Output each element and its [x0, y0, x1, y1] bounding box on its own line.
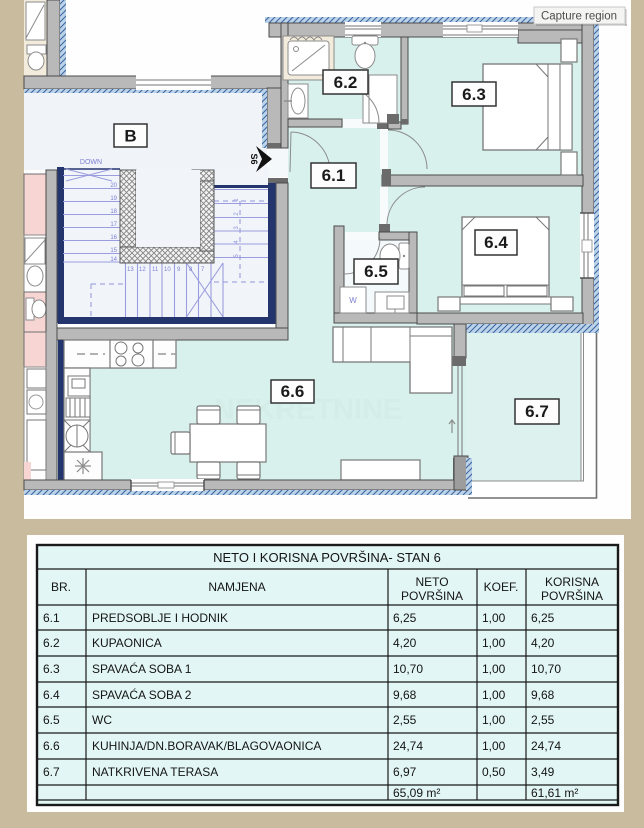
- svg-text:POVRŠINA: POVRŠINA: [401, 588, 463, 603]
- svg-text:11: 11: [152, 267, 159, 273]
- svg-text:1,00: 1,00: [482, 636, 506, 650]
- svg-text:2,55: 2,55: [393, 713, 417, 727]
- svg-text:20: 20: [110, 183, 117, 189]
- svg-text:BR.: BR.: [51, 580, 71, 594]
- svg-text:16: 16: [110, 235, 117, 241]
- svg-text:18: 18: [110, 209, 117, 215]
- svg-text:9,68: 9,68: [393, 688, 417, 702]
- svg-text:65,09 m²: 65,09 m²: [393, 786, 440, 800]
- svg-text:14: 14: [110, 257, 117, 263]
- svg-text:6.3: 6.3: [462, 85, 486, 104]
- svg-text:9,68: 9,68: [531, 688, 555, 702]
- svg-text:WC: WC: [92, 713, 112, 727]
- svg-text:NETO I KORISNA POVRŠINA- STAN: NETO I KORISNA POVRŠINA- STAN 6: [213, 550, 441, 565]
- svg-text:10: 10: [164, 267, 171, 273]
- svg-text:61,61 m²: 61,61 m²: [531, 786, 578, 800]
- svg-text:W: W: [349, 296, 357, 305]
- svg-text:6,25: 6,25: [393, 611, 417, 625]
- svg-text:6.3: 6.3: [43, 662, 60, 676]
- svg-text:10,70: 10,70: [393, 662, 423, 676]
- svg-text:6.2: 6.2: [334, 73, 358, 92]
- svg-text:POVRŠINA: POVRŠINA: [541, 588, 603, 603]
- svg-text:19: 19: [110, 196, 117, 202]
- svg-text:17: 17: [110, 222, 117, 228]
- svg-text:KUHINJA/DN.BORAVAK/BLAGOVAONIC: KUHINJA/DN.BORAVAK/BLAGOVAONICA: [92, 739, 321, 753]
- svg-text:13: 13: [127, 267, 134, 273]
- svg-text:1,00: 1,00: [482, 662, 506, 676]
- svg-text:0,50: 0,50: [482, 765, 506, 779]
- svg-text:Capture region: Capture region: [541, 11, 617, 23]
- svg-text:1,00: 1,00: [482, 688, 506, 702]
- svg-text:24,74: 24,74: [393, 739, 423, 753]
- svg-text:15: 15: [110, 248, 117, 254]
- svg-text:4,20: 4,20: [531, 636, 555, 650]
- svg-text:6.4: 6.4: [43, 688, 60, 702]
- svg-text:4,20: 4,20: [393, 636, 417, 650]
- svg-text:6.5: 6.5: [364, 262, 388, 281]
- svg-text:B: B: [124, 127, 136, 146]
- svg-text:3,49: 3,49: [531, 765, 555, 779]
- svg-text:SPAVAĆA SOBA 2: SPAVAĆA SOBA 2: [92, 687, 192, 702]
- svg-text:6.4: 6.4: [484, 233, 508, 252]
- svg-text:6.1: 6.1: [322, 166, 346, 185]
- svg-text:6.7: 6.7: [43, 765, 60, 779]
- svg-text:KOEF.: KOEF.: [484, 580, 519, 594]
- svg-text:6.6: 6.6: [43, 739, 60, 753]
- svg-text:SPAVAĆA SOBA 1: SPAVAĆA SOBA 1: [92, 661, 192, 676]
- svg-text:NATKRIVENA TERASA: NATKRIVENA TERASA: [92, 765, 218, 779]
- svg-text:NAMJENA: NAMJENA: [208, 580, 265, 594]
- svg-text:6.7: 6.7: [525, 402, 549, 421]
- svg-text:24,74: 24,74: [531, 739, 561, 753]
- svg-text:1,00: 1,00: [482, 611, 506, 625]
- svg-text:NETO: NETO: [415, 575, 448, 589]
- svg-text:6.2: 6.2: [43, 636, 60, 650]
- svg-text:1,00: 1,00: [482, 739, 506, 753]
- svg-text:PREDSOBLJE I HODNIK: PREDSOBLJE I HODNIK: [92, 611, 228, 625]
- svg-text:6.5: 6.5: [43, 713, 60, 727]
- svg-text:KORISNA: KORISNA: [545, 575, 599, 589]
- svg-text:6.6: 6.6: [281, 382, 305, 401]
- svg-text:KUPAONICA: KUPAONICA: [92, 636, 162, 650]
- svg-text:DOWN: DOWN: [80, 159, 102, 166]
- svg-text:2,55: 2,55: [531, 713, 555, 727]
- svg-text:S6: S6: [249, 153, 259, 164]
- svg-text:6.1: 6.1: [43, 611, 60, 625]
- svg-text:12: 12: [139, 267, 146, 273]
- svg-text:1,00: 1,00: [482, 713, 506, 727]
- svg-text:6,97: 6,97: [393, 765, 417, 779]
- svg-text:6,25: 6,25: [531, 611, 555, 625]
- svg-text:10,70: 10,70: [531, 662, 561, 676]
